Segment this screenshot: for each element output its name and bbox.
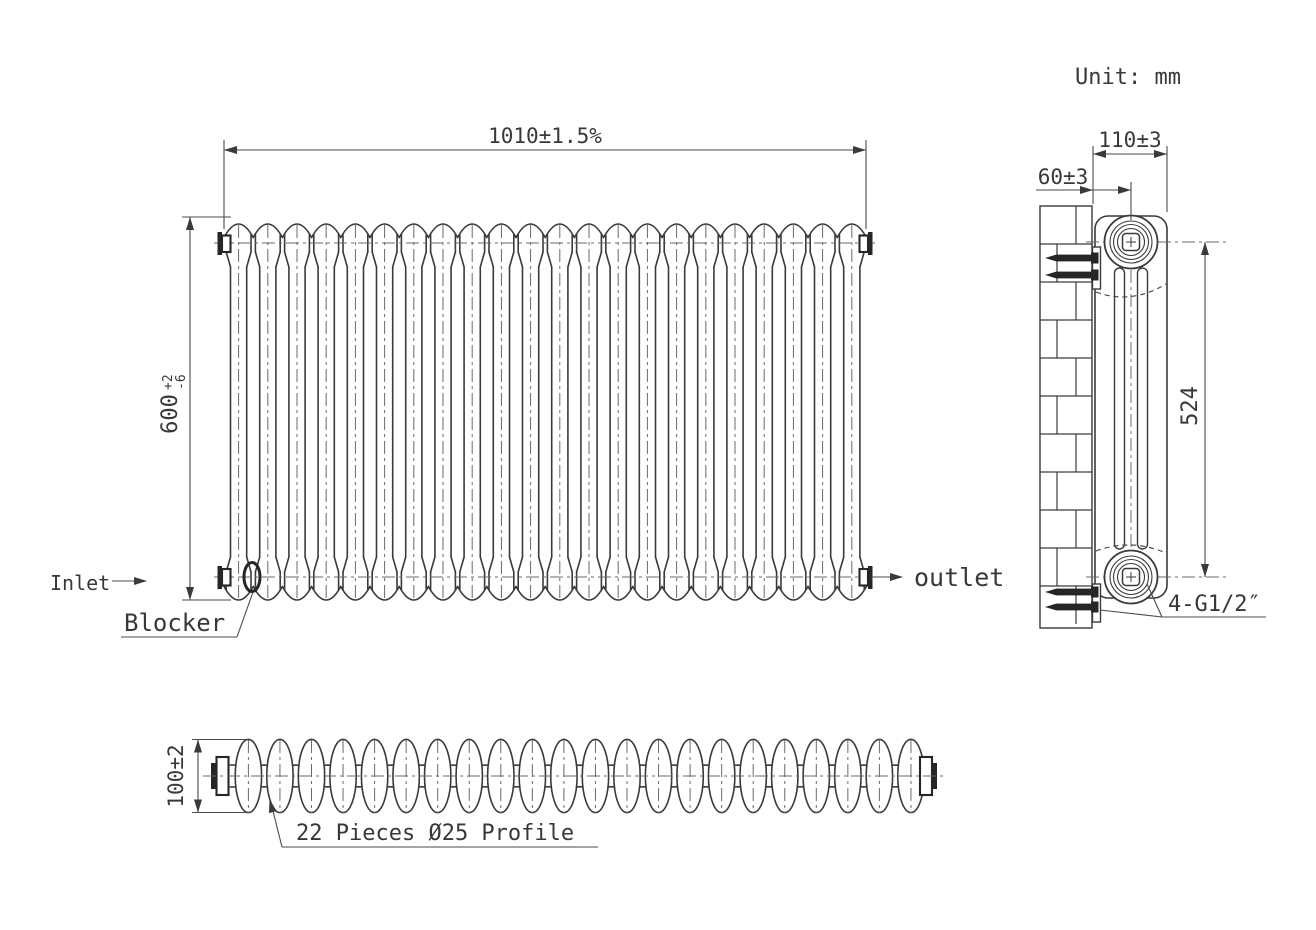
column-taper xyxy=(839,252,843,267)
column-taper xyxy=(422,252,426,267)
column-taper xyxy=(393,252,397,267)
arrowhead xyxy=(1118,186,1131,194)
column-taper xyxy=(685,252,689,267)
column-taper xyxy=(372,557,376,572)
column-taper xyxy=(460,252,464,267)
screw-head xyxy=(1091,602,1099,613)
column-taper xyxy=(664,557,668,572)
dim-height-value: 600 xyxy=(158,394,183,434)
side-column-slot-left xyxy=(1115,268,1125,549)
wall-section xyxy=(1040,206,1092,628)
column-taper xyxy=(364,252,368,267)
column-taper xyxy=(276,557,280,572)
blocker-label: Blocker xyxy=(124,609,225,637)
column-taper xyxy=(314,252,318,267)
column-taper xyxy=(364,557,368,572)
inlet-label: Inlet xyxy=(50,571,110,595)
column-taper xyxy=(305,252,309,267)
column-taper xyxy=(305,557,309,572)
arrowhead xyxy=(1201,564,1209,577)
column-taper xyxy=(802,557,806,572)
column-taper xyxy=(489,557,493,572)
blocker-leader xyxy=(237,592,253,637)
column-taper xyxy=(431,252,435,267)
column-taper xyxy=(626,557,630,572)
side-view: 110±3 60±3 524 4-G1/2″ xyxy=(1036,128,1266,628)
column-taper xyxy=(539,557,543,572)
column-taper xyxy=(226,252,230,267)
dim-depth-text: 110±3 xyxy=(1098,128,1161,152)
column-taper xyxy=(547,252,551,267)
column-taper xyxy=(247,252,251,267)
outlet-label: outlet xyxy=(914,563,1004,592)
column-taper xyxy=(422,557,426,572)
dim-height-600: 600 +2 -6 xyxy=(158,217,231,600)
column-taper xyxy=(393,557,397,572)
column-taper xyxy=(810,557,814,572)
column-taper xyxy=(372,252,376,267)
screw-head xyxy=(1091,270,1099,281)
column-taper xyxy=(480,557,484,572)
column-taper xyxy=(772,252,776,267)
column-taper xyxy=(831,557,835,572)
column-taper xyxy=(860,252,864,267)
arrowhead xyxy=(186,217,194,230)
unit-note: Unit: mm xyxy=(1075,65,1181,90)
column-taper xyxy=(276,252,280,267)
radiator-technical-drawing-page: 1010±1.5% 600 +2 -6 Inlet outlet Blocker xyxy=(0,0,1316,930)
dim-depth-110: 110±3 xyxy=(1093,128,1167,212)
column-taper xyxy=(577,252,581,267)
arrowhead xyxy=(890,573,903,581)
column-taper xyxy=(743,557,747,572)
column-taper xyxy=(451,557,455,572)
column-taper xyxy=(510,252,514,267)
screw-shaft xyxy=(1057,272,1091,279)
column-taper xyxy=(401,252,405,267)
bushing-top-right xyxy=(860,232,873,255)
column-taper xyxy=(480,252,484,267)
column-taper xyxy=(723,557,727,572)
column-taper xyxy=(343,557,347,572)
screw-head xyxy=(1091,253,1099,264)
column-taper xyxy=(752,557,756,572)
column-taper xyxy=(255,252,259,267)
arrowhead xyxy=(853,146,866,154)
column-taper xyxy=(518,252,522,267)
column-taper xyxy=(314,557,318,572)
profile-label: 22 Pieces Ø25 Profile xyxy=(296,821,574,846)
screw-shaft xyxy=(1057,604,1091,611)
column-taper xyxy=(781,252,785,267)
ports-leader-2 xyxy=(1100,610,1162,617)
column-taper xyxy=(518,557,522,572)
column-taper xyxy=(664,252,668,267)
column-taper xyxy=(656,557,660,572)
column-taper xyxy=(606,557,610,572)
column-taper xyxy=(285,557,289,572)
column-taper xyxy=(635,252,639,267)
column-taper xyxy=(334,557,338,572)
column-taper xyxy=(635,557,639,572)
bushing-bottom-right xyxy=(860,566,873,589)
column-taper xyxy=(285,252,289,267)
front-view: 1010±1.5% 600 +2 -6 Inlet outlet Blocker xyxy=(50,124,1004,637)
column-taper xyxy=(460,557,464,572)
column-taper xyxy=(451,252,455,267)
screw-shaft xyxy=(1057,255,1091,262)
column-taper xyxy=(714,252,718,267)
column-taper xyxy=(693,557,697,572)
drawing-canvas: 1010±1.5% 600 +2 -6 Inlet outlet Blocker xyxy=(0,0,1316,930)
column-taper xyxy=(743,252,747,267)
bushing-top-left xyxy=(218,232,231,255)
column-taper xyxy=(752,252,756,267)
column-taper xyxy=(839,557,843,572)
column-taper xyxy=(810,252,814,267)
dim-width-1010: 1010±1.5% xyxy=(224,124,866,229)
column-taper xyxy=(334,252,338,267)
column-taper xyxy=(401,557,405,572)
column-taper xyxy=(568,557,572,572)
arrowhead xyxy=(224,146,237,154)
dim-height-tol-lower: -6 xyxy=(174,374,189,390)
column-taper xyxy=(539,252,543,267)
column-taper xyxy=(547,557,551,572)
column-taper xyxy=(781,557,785,572)
arrowhead xyxy=(186,587,194,600)
front-columns xyxy=(224,224,866,600)
column-taper xyxy=(510,557,514,572)
plan-view: 100±2 22 Pieces Ø25 Profile xyxy=(164,739,944,847)
column-taper xyxy=(772,557,776,572)
column-taper xyxy=(577,557,581,572)
arrowhead xyxy=(194,740,202,753)
side-column-slot-right xyxy=(1138,268,1148,549)
column-taper xyxy=(597,557,601,572)
arrowhead xyxy=(1201,242,1209,255)
screw-head xyxy=(1091,587,1099,598)
dim-port-span-text: 524 xyxy=(1178,386,1203,426)
column-taper xyxy=(626,252,630,267)
column-taper xyxy=(802,252,806,267)
arrowhead xyxy=(134,577,147,585)
column-taper xyxy=(489,252,493,267)
screw-shaft xyxy=(1057,589,1091,596)
dim-thickness-text: 100±2 xyxy=(164,744,188,807)
dim-width-text: 1010±1.5% xyxy=(488,124,602,148)
column-taper xyxy=(568,252,572,267)
column-taper xyxy=(685,557,689,572)
column-taper xyxy=(431,557,435,572)
column-taper xyxy=(723,252,727,267)
column-taper xyxy=(597,252,601,267)
ports-thread-label: 4-G1/2″ xyxy=(1168,592,1261,617)
column-taper xyxy=(714,557,718,572)
dim-port-span-524: 524 xyxy=(1178,242,1205,577)
arrowhead xyxy=(194,800,202,813)
bushing-bottom-left xyxy=(218,566,231,589)
column-taper xyxy=(606,252,610,267)
column-taper xyxy=(831,252,835,267)
dim-offset-text: 60±3 xyxy=(1038,165,1089,189)
column-taper xyxy=(693,252,697,267)
column-taper xyxy=(656,252,660,267)
column-taper xyxy=(343,252,347,267)
